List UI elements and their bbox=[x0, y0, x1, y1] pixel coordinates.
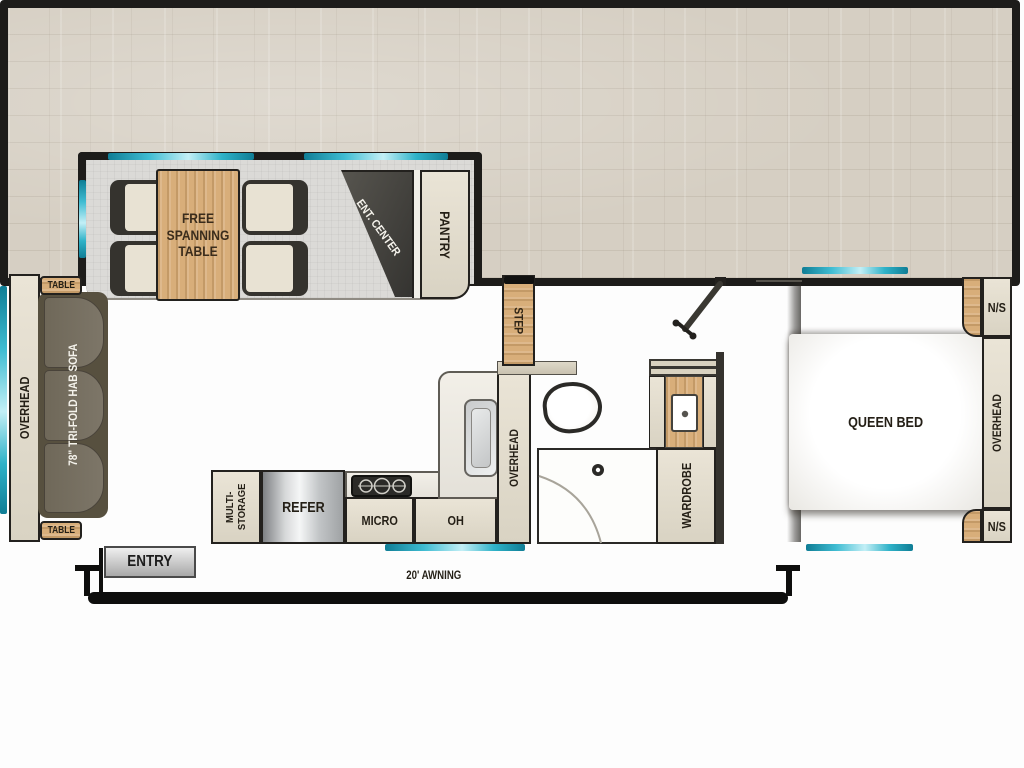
side-table-top-label: TABLE bbox=[47, 280, 74, 291]
vanity-side-left bbox=[649, 376, 665, 448]
side-table-bottom-label: TABLE bbox=[47, 525, 74, 536]
living-overhead-cabinet: OVERHEAD bbox=[9, 274, 40, 542]
entry-door-post bbox=[99, 548, 103, 592]
ns-top-label: N/S bbox=[988, 300, 1006, 315]
wardrobe: WARDROBE bbox=[656, 448, 716, 544]
bath-sink bbox=[671, 394, 698, 432]
pantry-label: PANTRY bbox=[437, 211, 453, 259]
entry-label: ENTRY bbox=[127, 553, 172, 571]
oh-label: OH bbox=[447, 513, 463, 528]
multi-storage-cabinet: MULTI- STORAGE bbox=[211, 470, 261, 544]
rv-floorplan: FREE SPANNING TABLE ENT. CENTER PANTRY O… bbox=[0, 0, 1024, 768]
step-label: STEP bbox=[512, 307, 526, 334]
side-table-bottom: TABLE bbox=[40, 521, 82, 540]
nightstand-bottom-wood bbox=[962, 509, 982, 543]
kitchen-sink bbox=[464, 399, 498, 477]
entry-step: ENTRY bbox=[104, 546, 196, 578]
sofa-label: 78" TRI-FOLD HAB SOFA bbox=[66, 344, 80, 466]
queen-bed: QUEEN BED bbox=[789, 334, 982, 510]
awning-dimension: 20' AWNING bbox=[374, 568, 494, 584]
awning-right-stem bbox=[786, 570, 792, 596]
bedroom-window-top-icon bbox=[802, 267, 908, 274]
ns-bottom-label: N/S bbox=[988, 519, 1006, 534]
entry-step-strip: STEP bbox=[502, 275, 535, 366]
toilet bbox=[540, 379, 604, 436]
slide-window-left-icon bbox=[108, 153, 254, 160]
awning-label: 20' AWNING bbox=[406, 570, 461, 582]
stove-cooktop bbox=[351, 475, 412, 497]
free-spanning-table: FREE SPANNING TABLE bbox=[156, 169, 240, 301]
wardrobe-label: WARDROBE bbox=[679, 463, 694, 529]
bedroom-partition-wall bbox=[716, 352, 724, 544]
queen-bed-label: QUEEN BED bbox=[848, 414, 923, 431]
vanity-side-right bbox=[703, 376, 717, 448]
shower bbox=[537, 448, 658, 544]
kitchen-window-bottom-icon bbox=[385, 544, 525, 551]
pantry-cabinet: PANTRY bbox=[420, 170, 470, 299]
dinette-chair bbox=[242, 241, 308, 296]
bedroom-door-swing bbox=[673, 277, 727, 340]
nightstand-bottom: N/S bbox=[982, 509, 1012, 543]
bedroom-overhead-cabinet: OVERHEAD bbox=[982, 337, 1012, 509]
kitchen-overhead-cabinet: OVERHEAD bbox=[497, 372, 531, 544]
tri-fold-sofa: 78" TRI-FOLD HAB SOFA bbox=[38, 292, 108, 518]
rear-window-icon bbox=[0, 286, 7, 514]
micro-label: MICRO bbox=[361, 513, 397, 528]
step-handle bbox=[504, 276, 534, 284]
vanity-backsplash2 bbox=[649, 367, 718, 376]
slide-window-side-icon bbox=[79, 180, 86, 258]
awning-bar bbox=[88, 592, 788, 604]
free-spanning-table-label: FREE SPANNING TABLE bbox=[164, 210, 233, 260]
side-table-top: TABLE bbox=[40, 276, 82, 295]
refrigerator: REFER bbox=[261, 470, 345, 544]
refer-label: REFER bbox=[282, 499, 325, 516]
nightstand-top-wood bbox=[962, 277, 982, 337]
slide-window-right-icon bbox=[304, 153, 448, 160]
oh-cabinet: OH bbox=[414, 497, 497, 544]
awning-left-stem bbox=[84, 570, 90, 596]
bedroom-window-bottom-icon bbox=[806, 544, 913, 551]
living-overhead-label: OVERHEAD bbox=[17, 377, 32, 440]
nightstand-top: N/S bbox=[982, 277, 1012, 337]
bedroom-overhead-label: OVERHEAD bbox=[990, 394, 1004, 452]
dinette-chair bbox=[242, 180, 308, 235]
kitchen-overhead-label: OVERHEAD bbox=[507, 429, 521, 487]
multi-storage-label: MULTI- STORAGE bbox=[224, 484, 248, 531]
microwave-cabinet: MICRO bbox=[345, 497, 414, 544]
